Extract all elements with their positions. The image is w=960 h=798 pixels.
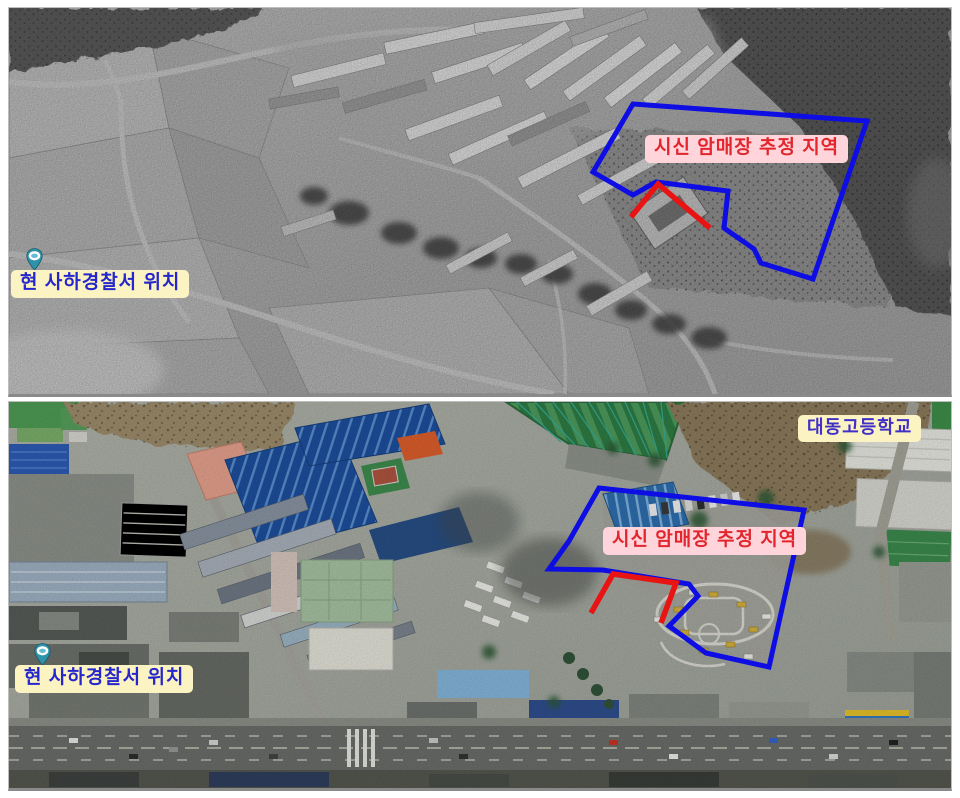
photo-grain — [9, 402, 951, 788]
map-pin-icon — [26, 248, 43, 271]
burial-area-label-bottom: 시신 암매장 추정 지역 — [603, 527, 806, 555]
satellite-photo-current: 대동고등학교 시신 암매장 추정 지역 현 사하경찰서 위치 — [8, 401, 952, 791]
aerial-photo-historical: 시신 암매장 추정 지역 현 사하경찰서 위치 — [8, 7, 952, 397]
satellite-scene-color — [9, 402, 951, 788]
aerial-scene-bw — [9, 8, 951, 394]
police-location-label-top: 현 사하경찰서 위치 — [11, 270, 189, 298]
film-grain — [9, 8, 951, 394]
map-pin-icon — [34, 643, 51, 666]
page-root: 시신 암매장 추정 지역 현 사하경찰서 위치 — [0, 0, 960, 798]
school-label: 대동고등학교 — [798, 415, 921, 442]
police-location-label-bottom: 현 사하경찰서 위치 — [15, 665, 193, 693]
burial-area-label-top: 시신 암매장 추정 지역 — [645, 135, 848, 163]
